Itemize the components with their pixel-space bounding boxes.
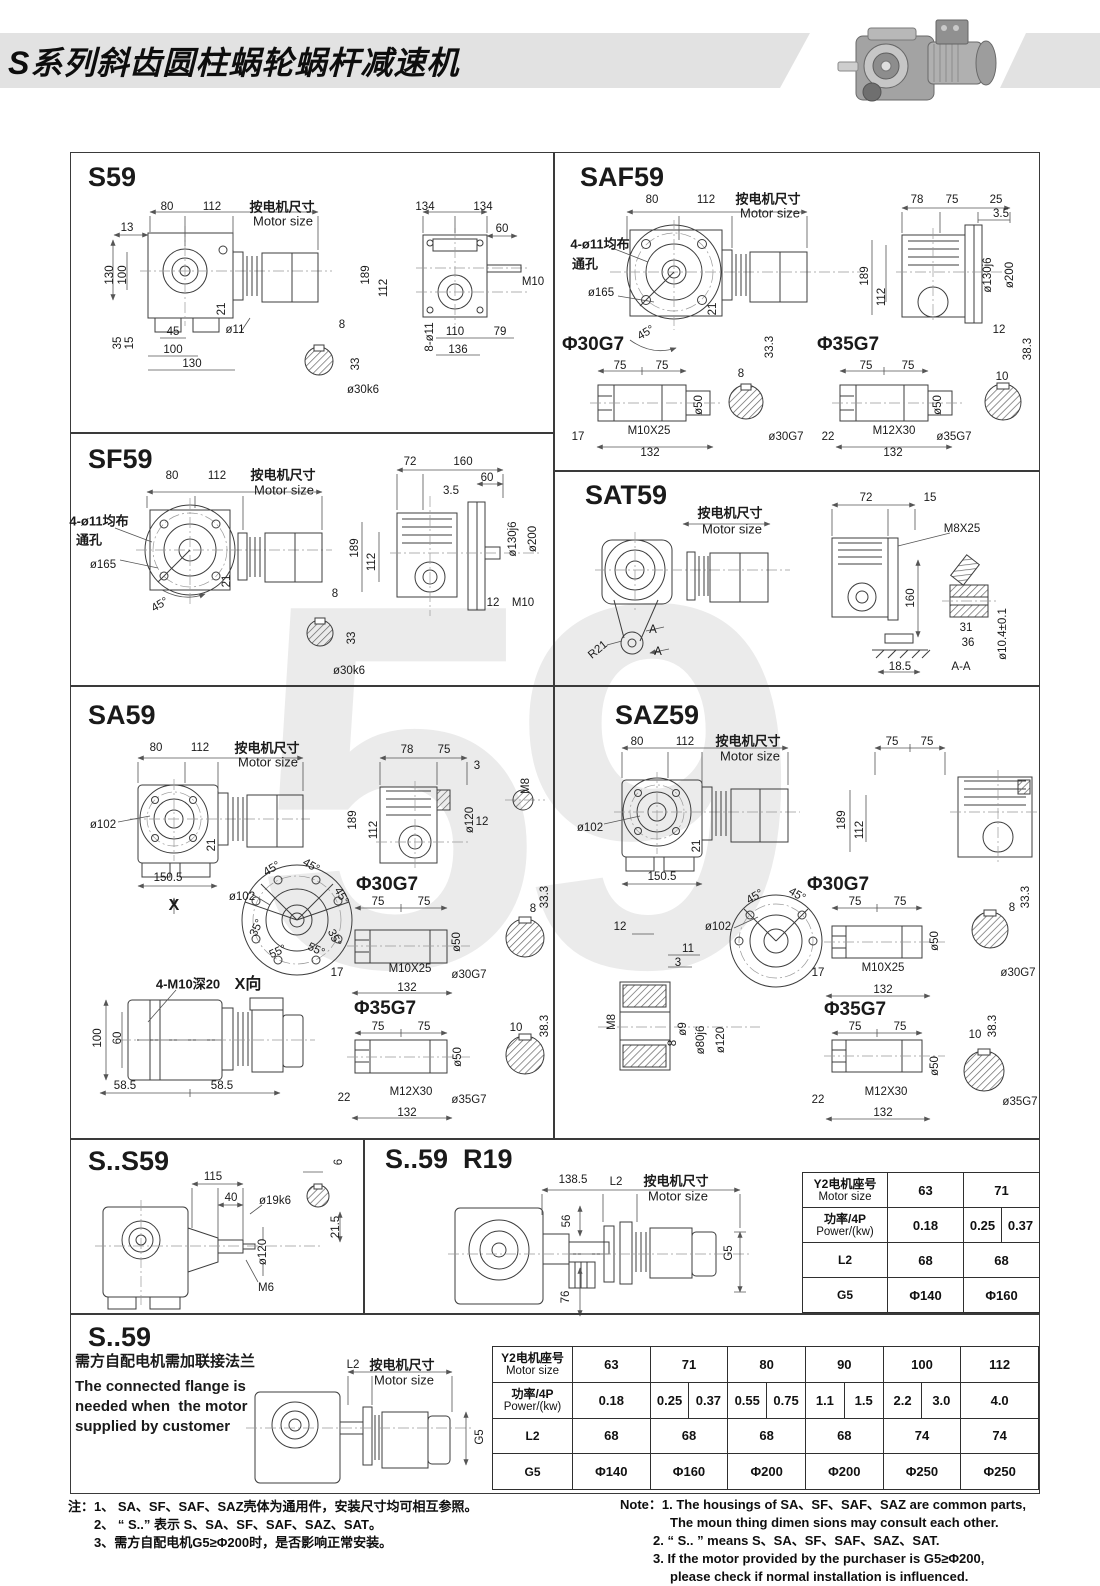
dim-label: Φ35G7 [824, 999, 886, 1021]
dim-label: 75 [886, 736, 899, 748]
table-cell: Φ250 [961, 1454, 1039, 1490]
dim-label: 75 [894, 1021, 907, 1033]
table-cell: 2.2 [883, 1382, 922, 1418]
table-cell: Φ200 [728, 1454, 806, 1490]
dim-label: 按电机尺寸 [250, 465, 315, 484]
dim-label: 3 [474, 760, 480, 772]
dim-label: M8X25 [944, 523, 980, 535]
dim-label: 36 [962, 637, 975, 649]
dim-label: 25 [990, 194, 1003, 206]
dim-label: 21 [691, 840, 703, 853]
dim-label: ø102 [705, 921, 731, 933]
dim-label: 56 [561, 1215, 573, 1228]
dim-label: 132 [883, 447, 902, 459]
note-line: The moun thing dimen sions may consult e… [620, 1514, 1026, 1532]
dim-label: Motor size [720, 749, 780, 764]
note-line: 2、 “ S..” 表示 S、SA、SF、SAF、SAZ、SAT。 [68, 1516, 478, 1534]
table-cell: 0.37 [689, 1382, 728, 1418]
dim-label: M12X30 [873, 425, 916, 437]
dim-label: M12X30 [390, 1086, 433, 1098]
dim-label: 78 [401, 744, 414, 756]
dim-label: ø11 [226, 324, 245, 336]
dim-label: 4-ø11均布 [69, 511, 128, 530]
dim-label: 132 [873, 984, 892, 996]
dim-label: 75 [849, 896, 862, 908]
table-cell: Φ250 [883, 1454, 961, 1490]
table-cell: 0.37 [1002, 1208, 1040, 1243]
dim-label: ø30G7 [768, 431, 803, 443]
divider-row2-row3 [70, 685, 1040, 687]
saz59-drawing [598, 744, 1040, 1119]
dim-label: 78 [911, 194, 924, 206]
dim-label: 17 [572, 431, 585, 443]
dim-label: 8 [530, 903, 536, 915]
dim-label: 4-M10深20 [156, 974, 220, 993]
dim-label: X向 [235, 970, 262, 994]
dim-label: 75 [438, 744, 451, 756]
row-header: G5 [803, 1278, 888, 1313]
note-line: 2. “ S.. ” means S、SA、SF、SAF、SAZ、SAT. [620, 1532, 1026, 1550]
dim-label: 6 [333, 1159, 345, 1165]
dim-label: ø50 [929, 931, 941, 951]
dim-label: ø50 [932, 395, 944, 415]
dim-label: ø50 [929, 1056, 941, 1076]
dim-label: 112 [378, 279, 390, 297]
dim-label: 100 [92, 1028, 104, 1047]
footnotes-chinese: 注：1、 SA、SF、SAF、SAZ壳体为通用件，安装尺寸均可相互参照。2、 “… [68, 1498, 478, 1552]
dim-label: 通孔 [76, 530, 102, 549]
dim-label: 15 [924, 492, 937, 504]
dim-label: 17 [331, 967, 344, 979]
table-cell: 80 [728, 1347, 806, 1383]
divider-row3-row4 [70, 1138, 1040, 1140]
dim-label: M10X25 [628, 425, 671, 437]
dim-label: 10 [996, 371, 1009, 383]
table-cell: 4.0 [961, 1382, 1039, 1418]
dim-label: 72 [404, 456, 417, 468]
note-line: please check if normal installation is i… [620, 1568, 1026, 1586]
dim-label: ø200 [1004, 262, 1016, 288]
panel-title: SAT59 [585, 480, 667, 511]
dim-label: 112 [366, 553, 378, 571]
table-cell: 0.55 [728, 1382, 767, 1418]
table-cell: 68 [805, 1418, 883, 1454]
dim-label: 60 [481, 472, 494, 484]
dim-label: 75 [860, 360, 873, 372]
dim-label: 80 [166, 470, 179, 482]
dim-label: Φ30G7 [562, 334, 624, 356]
table-cell: Φ160 [964, 1278, 1040, 1313]
dim-label: Motor size [702, 522, 762, 537]
dim-label: 80 [631, 736, 644, 748]
dim-label: 10 [510, 1022, 523, 1034]
dim-label: 112 [208, 470, 226, 482]
dim-label: Motor size [253, 214, 313, 229]
dim-label: 38.3 [987, 1015, 999, 1037]
panel-title: S..S59 [88, 1146, 169, 1177]
table-cell: 0.18 [888, 1208, 964, 1243]
dim-label: 80 [161, 201, 174, 213]
dim-label: 45 [167, 326, 180, 338]
row-header: Y2电机座号Motor size [493, 1347, 573, 1383]
panel-title: SAF59 [580, 162, 664, 193]
dim-label: 112 [203, 201, 221, 213]
table-cell: 0.25 [964, 1208, 1002, 1243]
table-cell: 0.25 [650, 1382, 689, 1418]
dim-label: 8 [738, 368, 744, 380]
table-cell: 71 [964, 1173, 1040, 1208]
dim-label: 21 [221, 575, 233, 588]
dim-label: 189 [360, 265, 372, 284]
dim-label: ø35G7 [936, 431, 971, 443]
dim-label: 按电机尺寸 [643, 1171, 708, 1190]
dim-label: 8 [1009, 902, 1015, 914]
dim-label: 132 [397, 982, 416, 994]
dim-label: 33.3 [1020, 886, 1032, 908]
dim-label: A-A [951, 661, 970, 673]
dim-label: 75 [902, 360, 915, 372]
divider-row4-row5 [70, 1313, 1040, 1315]
dim-label: M8 [520, 778, 532, 794]
dim-label: M12X30 [865, 1086, 908, 1098]
dim-label: 3.5 [993, 208, 1009, 220]
motor-table-small: Y2电机座号Motor size6371功率/4PPower/(kw)0.180… [802, 1172, 1039, 1312]
dim-label: 132 [873, 1107, 892, 1119]
dim-label: ø19k6 [259, 1195, 291, 1207]
dim-label: 8 [332, 588, 338, 600]
dim-label: Motor size [374, 1373, 434, 1388]
dim-label: 8 [667, 1040, 679, 1046]
dim-label: 112 [191, 742, 209, 754]
table-cell: 74 [961, 1418, 1039, 1454]
dim-label: 75 [614, 360, 627, 372]
divider-vertical-main [553, 152, 555, 1138]
table-cell: 68 [888, 1243, 964, 1278]
dim-label: Motor size [238, 755, 298, 770]
dim-label: 22 [822, 431, 835, 443]
footnotes-english: Note：1. The housings of SA、SF、SAF、SAZ ar… [620, 1496, 1026, 1586]
dim-label: 按电机尺寸 [715, 731, 780, 750]
dim-label: 按电机尺寸 [697, 503, 762, 522]
dim-label: 12 [476, 816, 489, 828]
dim-label: 100 [163, 344, 182, 356]
dim-label: 112 [697, 194, 715, 206]
dim-label: 75 [894, 896, 907, 908]
page-title: S系列斜齿圆柱蜗轮蜗杆减速机 [8, 38, 459, 84]
dim-label: 8-ø11 [424, 322, 436, 351]
table-cell: 112 [961, 1347, 1039, 1383]
note-line: 3、需方自配电机G5≥Φ200时，是否影响正常安装。 [68, 1534, 478, 1552]
dim-label: The connected flange is [75, 1378, 246, 1395]
panel-title: SF59 [88, 444, 153, 475]
row-header: L2 [803, 1243, 888, 1278]
dim-label: M10 [512, 597, 534, 609]
dim-label: 112 [854, 821, 866, 839]
dim-label: 189 [347, 810, 359, 829]
dim-label: ø80j6 [695, 1026, 707, 1055]
dim-label: ø50 [451, 932, 463, 952]
dim-label: 17 [812, 967, 825, 979]
dim-label: 134 [473, 201, 492, 213]
dim-label: ø30G7 [1000, 967, 1035, 979]
table-cell: 71 [650, 1347, 728, 1383]
dim-label: 160 [905, 588, 917, 607]
dim-label: 31 [960, 622, 973, 634]
dim-label: 58.5 [211, 1080, 233, 1092]
note-line: 注：1、 SA、SF、SAF、SAZ壳体为通用件，安装尺寸均可相互参照。 [68, 1498, 478, 1516]
dim-label: 60 [496, 223, 509, 235]
dim-label: L2 [610, 1176, 623, 1188]
dim-label: ø9 [677, 1022, 689, 1035]
dim-label: 150.5 [648, 871, 677, 883]
dim-label: A [654, 646, 662, 658]
dim-label: ø102 [90, 819, 116, 831]
dim-label: Motor size [740, 206, 800, 221]
dim-label: 通孔 [572, 254, 598, 273]
dim-label: 130 [182, 358, 201, 370]
dim-label: 75 [418, 1021, 431, 1033]
dim-label: 35 [112, 337, 124, 350]
note-line: Note：1. The housings of SA、SF、SAF、SAZ ar… [620, 1496, 1026, 1514]
dim-label: 75 [921, 736, 934, 748]
dim-label: ø10.4±0.1 [997, 608, 1009, 660]
table-cell: 68 [728, 1418, 806, 1454]
dim-label: 75 [849, 1021, 862, 1033]
dim-label: ø35G7 [1002, 1096, 1037, 1108]
row-header: L2 [493, 1418, 573, 1454]
dim-label: 80 [646, 194, 659, 206]
dim-label: ø120 [715, 1027, 727, 1053]
dim-label: 21.5 [330, 1216, 342, 1238]
dim-label: 21 [707, 303, 719, 316]
dim-label: M8 [606, 1014, 618, 1030]
s59-r19-drawing [448, 1190, 750, 1316]
dim-label: 138.5 [559, 1174, 588, 1186]
table-cell: 68 [573, 1418, 651, 1454]
dim-label: 33.3 [764, 336, 776, 358]
dim-label: 115 [204, 1171, 222, 1183]
dim-label: ø102 [229, 891, 255, 903]
dim-label: 75 [372, 1021, 385, 1033]
table-cell: 0.18 [573, 1382, 651, 1418]
dim-label: M10 [522, 276, 544, 288]
dim-label: supplied by customer [75, 1418, 230, 1435]
dim-label: 21 [206, 839, 218, 852]
dim-label: 136 [448, 344, 467, 356]
dim-label: 112 [676, 736, 694, 748]
table-cell: 0.75 [767, 1382, 806, 1418]
dim-label: 134 [415, 201, 434, 213]
table-cell: 1.5 [844, 1382, 883, 1418]
dim-label: 75 [418, 896, 431, 908]
dim-label: 75 [372, 896, 385, 908]
table-cell: 63 [888, 1173, 964, 1208]
dim-label: Motor size [254, 483, 314, 498]
dim-label: A [649, 624, 657, 636]
dim-label: L2 [347, 1359, 360, 1371]
dim-label: 189 [349, 538, 361, 557]
table-cell: 68 [650, 1418, 728, 1454]
table-cell: 1.1 [805, 1382, 844, 1418]
dim-label: 130 [104, 265, 116, 284]
table-cell: 3.0 [922, 1382, 961, 1418]
dim-label: 12 [487, 597, 500, 609]
dim-label: Φ30G7 [356, 874, 418, 896]
dim-label: 按电机尺寸 [369, 1355, 434, 1374]
divider-s59-sf59 [70, 432, 555, 434]
table-cell: Φ160 [650, 1454, 728, 1490]
dim-label: 60 [112, 1032, 124, 1045]
dim-label: 11 [682, 943, 694, 955]
dim-label: ø165 [588, 287, 614, 299]
panel-title: S..59 [88, 1322, 151, 1353]
dim-label: 21 [216, 303, 228, 316]
dim-label: 10 [969, 1029, 982, 1041]
row-header: Y2电机座号Motor size [803, 1173, 888, 1208]
dim-label: ø50 [452, 1047, 464, 1067]
dim-label: 40 [225, 1192, 238, 1204]
dim-label: G5 [723, 1245, 735, 1260]
s-s59-drawing [95, 1172, 340, 1309]
dim-label: Φ35G7 [354, 998, 416, 1020]
dim-label: Φ35G7 [817, 334, 879, 356]
dim-label: G5 [474, 1429, 486, 1444]
dim-label: 33 [346, 632, 358, 645]
note-line: 3. If the motor provided by the purchase… [620, 1550, 1026, 1568]
dim-label: ø200 [527, 526, 539, 552]
s59-bottom-drawing [246, 1372, 472, 1483]
dim-label: 75 [946, 194, 959, 206]
dim-label: 110 [446, 326, 464, 338]
dim-label: ø130j6 [507, 521, 519, 556]
dim-label: 38.3 [539, 1015, 551, 1037]
panel-title: SA59 [88, 700, 156, 731]
dim-label: ø50 [693, 395, 705, 415]
dim-label: 需方自配电机需加联接法兰 [75, 1350, 255, 1371]
dim-label: 112 [876, 288, 888, 306]
dim-label: 4-ø11均布 [570, 234, 629, 253]
table-cell: 68 [964, 1243, 1040, 1278]
table-cell: 63 [573, 1347, 651, 1383]
table-cell: 90 [805, 1347, 883, 1383]
row-header: 功率/4PPower/(kw) [803, 1208, 888, 1243]
divider-saf59-sat59 [553, 470, 1040, 472]
dim-label: ø130j6 [982, 257, 994, 292]
dim-label: 3 [675, 957, 681, 969]
dim-label: 112 [368, 821, 380, 839]
dim-label: Φ30G7 [807, 874, 869, 896]
dim-label: 160 [453, 456, 472, 468]
dim-label: ø165 [90, 559, 116, 571]
panel-title: S..59 R19 [385, 1144, 513, 1175]
dim-label: Motor size [648, 1189, 708, 1204]
dim-label: 22 [812, 1094, 825, 1106]
dim-label: 33.3 [539, 886, 551, 908]
table-cell: 100 [883, 1347, 961, 1383]
dim-label: 132 [640, 447, 659, 459]
dim-label: ø30k6 [347, 384, 379, 396]
table-cell: Φ200 [805, 1454, 883, 1490]
table-cell: Φ140 [573, 1454, 651, 1490]
dim-label: 13 [121, 222, 134, 234]
dim-label: 8 [339, 319, 345, 331]
dim-label: ø30k6 [333, 665, 365, 677]
dim-label: 3.5 [443, 485, 459, 497]
dim-label: 33 [350, 358, 362, 371]
dim-label: 12 [993, 324, 1006, 336]
table-cell: Φ140 [888, 1278, 964, 1313]
dim-label: 79 [494, 326, 507, 338]
divider-ss59-r19 [363, 1138, 365, 1315]
panel-title: S59 [88, 162, 136, 193]
sf59-drawing [115, 470, 540, 646]
dim-label: X [169, 897, 180, 915]
sa59-drawing [100, 758, 545, 1118]
dim-label: ø35G7 [451, 1094, 486, 1106]
dim-label: 15 [124, 337, 136, 350]
dim-label: needed when the motor [75, 1398, 248, 1415]
dim-label: ø30G7 [451, 969, 486, 981]
dim-label: 76 [560, 1291, 572, 1304]
dim-label: M6 [258, 1282, 274, 1294]
dim-label: M10X25 [862, 962, 905, 974]
dim-label: ø120 [257, 1239, 269, 1265]
panel-title: SAZ59 [615, 700, 699, 731]
table-cell: 74 [883, 1418, 961, 1454]
dim-label: 80 [150, 742, 163, 754]
motor-table-large: Y2电机座号Motor size63718090100112功率/4PPower… [492, 1346, 1038, 1489]
row-header: G5 [493, 1454, 573, 1490]
dim-label: 38.3 [1022, 338, 1034, 360]
dim-label: M10X25 [389, 963, 432, 975]
catalog-page: { "header": {"title": "S系列斜齿圆柱蜗轮蜗杆减速机"},… [0, 0, 1100, 1583]
dim-label: 12 [614, 921, 627, 933]
dim-label: ø102 [577, 822, 603, 834]
dim-label: 58.5 [114, 1080, 136, 1092]
product-photo-icon [838, 20, 996, 101]
dim-label: 150.5 [154, 872, 183, 884]
dim-label: 189 [836, 810, 848, 829]
dim-label: 22 [338, 1092, 351, 1104]
dim-label: 132 [397, 1107, 416, 1119]
dim-label: 189 [859, 266, 871, 285]
row-header: 功率/4PPower/(kw) [493, 1382, 573, 1418]
dim-label: 75 [656, 360, 669, 372]
dim-label: 100 [117, 265, 129, 284]
dim-label: 18.5 [889, 661, 911, 673]
saf59-drawing [590, 208, 1021, 447]
dim-label: 72 [860, 492, 873, 504]
dim-label: ø120 [464, 807, 476, 833]
